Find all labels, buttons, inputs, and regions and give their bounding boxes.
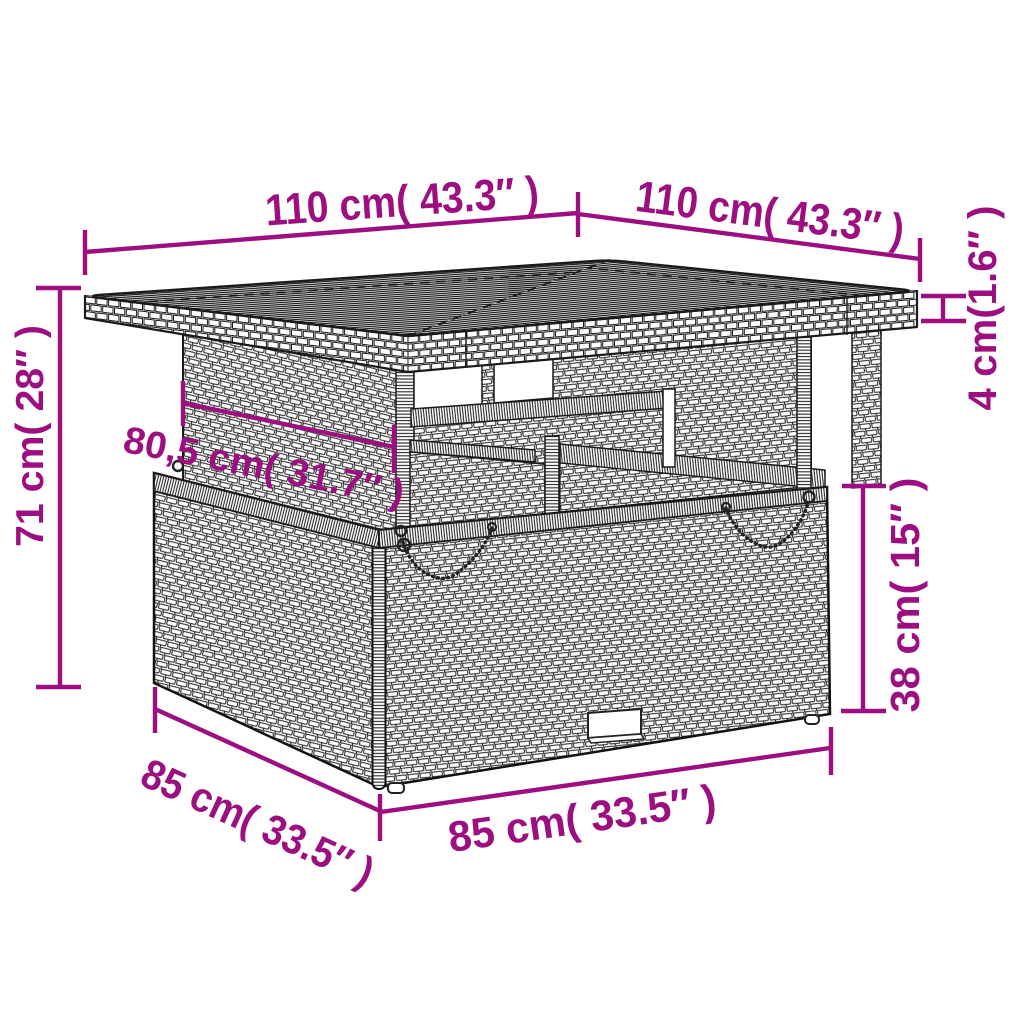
- svg-text:71 cm( 28″ ): 71 cm( 28″ ): [9, 325, 52, 547]
- svg-text:38 cm( 15″ ): 38 cm( 15″ ): [882, 478, 928, 713]
- svg-text:4 cm(1.6″ ): 4 cm(1.6″ ): [961, 206, 1005, 411]
